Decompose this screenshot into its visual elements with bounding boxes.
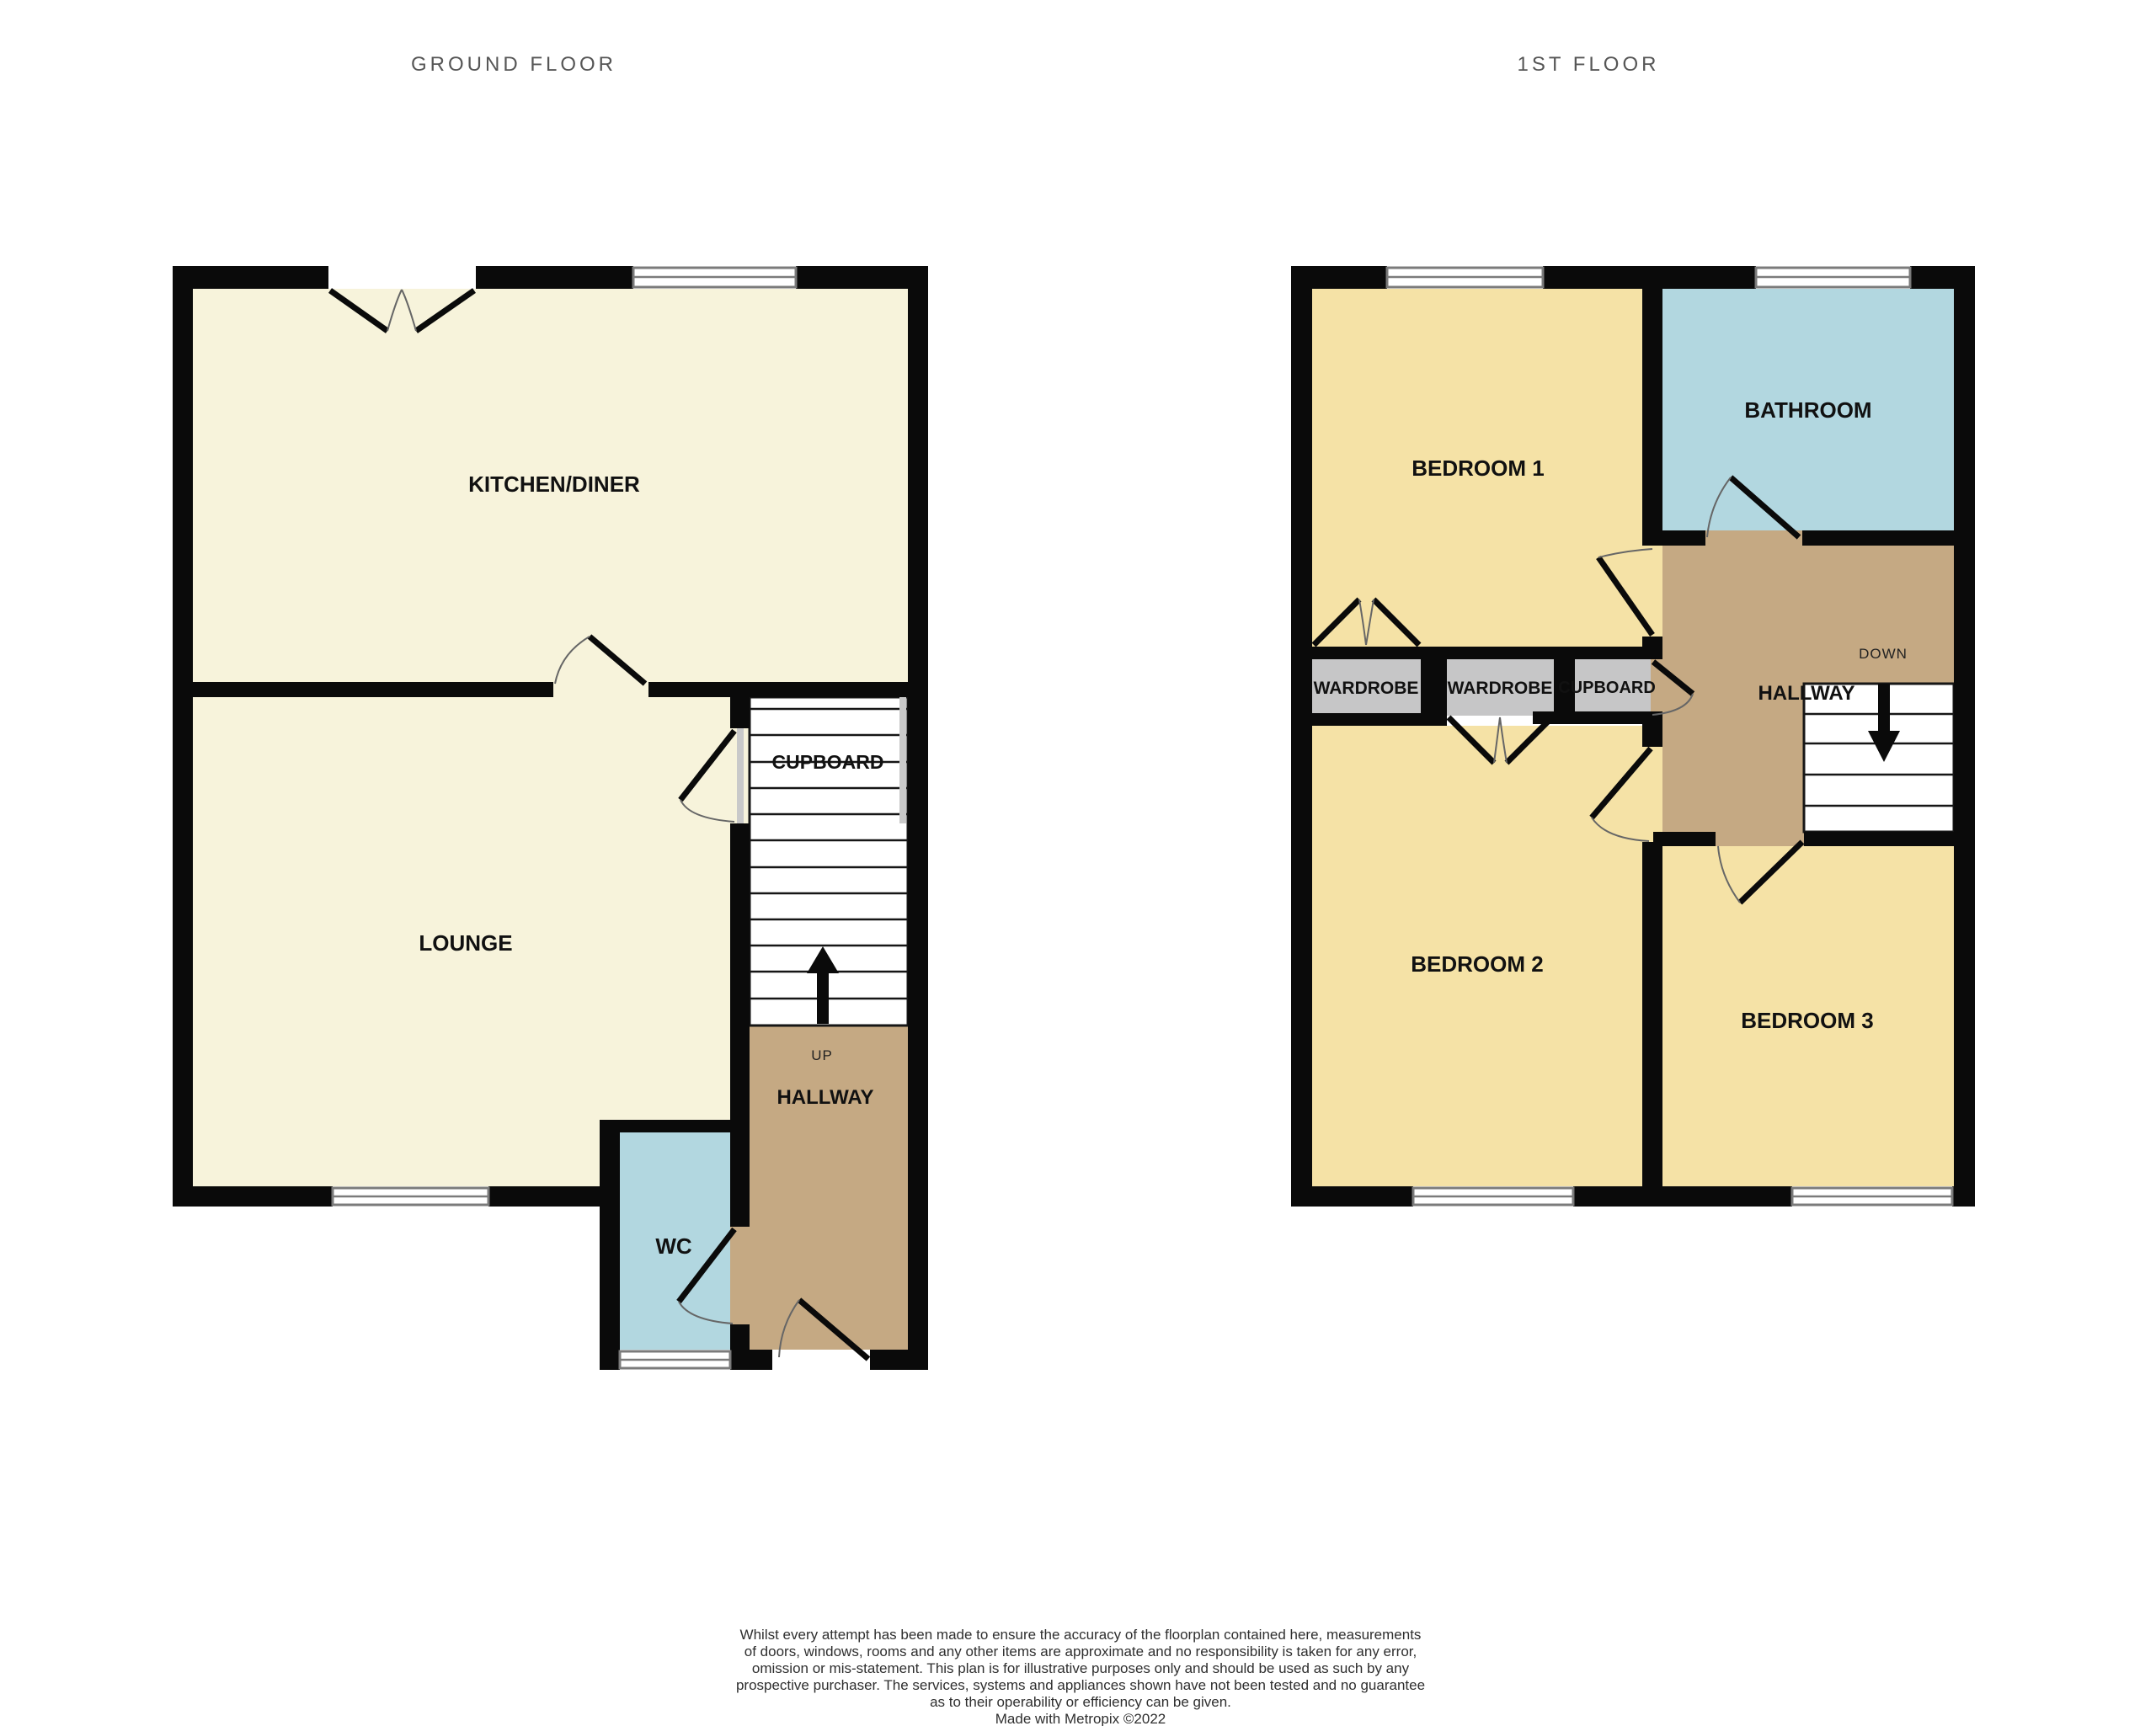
first-stairs (1804, 684, 1954, 832)
kitchen-door-gap (553, 682, 648, 697)
bedroom1-label: BEDROOM 1 (1412, 455, 1544, 481)
first-cupboard-label: CUPBOARD (1558, 679, 1656, 697)
bedroom2-window (1413, 1188, 1573, 1205)
first-floor-plan: 1ST FLOOR BEDROOM 1 BATHROOM WARDROBE WA… (1291, 53, 1975, 1207)
kitchen-window (633, 268, 796, 287)
ground-cupboard-label: CUPBOARD (772, 751, 884, 773)
first-hallway-label: HALLWAY (1758, 682, 1854, 705)
wardrobe2-label: WARDROBE (1448, 679, 1553, 698)
bedroom2-label: BEDROOM 2 (1411, 951, 1543, 977)
ground-floor-title: GROUND FLOOR (411, 53, 616, 76)
bedroom3-label: BEDROOM 3 (1741, 1008, 1873, 1033)
bathroom-door-gap (1705, 530, 1802, 546)
cupboard-door-jamb (737, 728, 744, 823)
ground-hallway-label: HALLWAY (776, 1086, 873, 1109)
first-hallway-floor-upper (1662, 546, 1954, 684)
ground-hallway-floor (750, 1025, 908, 1350)
bedroom3-door-gap (1716, 832, 1804, 846)
ground-stairs (737, 697, 908, 1025)
wc-window (620, 1351, 730, 1368)
ground-floor-plan: GROUND FLOOR KITCHEN/DINER LOUNGE CUPBOA… (173, 53, 928, 1370)
disclaimer-line: as to their operability or efficiency ca… (930, 1694, 1231, 1710)
wc-label: WC (655, 1233, 692, 1259)
wardrobe1-label: WARDROBE (1314, 679, 1419, 698)
bathroom-window (1756, 268, 1910, 287)
disclaimer-line: of doors, windows, rooms and any other i… (744, 1643, 1417, 1659)
bathroom-label: BATHROOM (1744, 397, 1871, 423)
lounge-window (333, 1188, 488, 1205)
kitchen-diner-label: KITCHEN/DINER (468, 471, 640, 497)
first-floor-title: 1ST FLOOR (1518, 53, 1660, 76)
disclaimer-line: Whilst every attempt has been made to en… (740, 1627, 1422, 1643)
disclaimer-line: prospective purchaser. The services, sys… (736, 1677, 1425, 1693)
bedroom3-window (1792, 1188, 1952, 1205)
made-with-credit: Made with Metropix ©2022 (995, 1711, 1166, 1726)
footer-disclaimer: Whilst every attempt has been made to en… (736, 1627, 1425, 1726)
stairs-up-label: UP (811, 1047, 833, 1063)
wc-door-gap (730, 1227, 750, 1324)
lounge-label: LOUNGE (419, 930, 512, 956)
bedroom1-window (1387, 268, 1543, 287)
stairs-down-label: DOWN (1859, 646, 1908, 662)
bedroom2-door-gap (1642, 747, 1662, 842)
floorplan-canvas: GROUND FLOOR KITCHEN/DINER LOUNGE CUPBOA… (0, 0, 2156, 1726)
cupboard-right-jamb (899, 697, 906, 823)
disclaimer-line: omission or mis-statement. This plan is … (752, 1660, 1410, 1676)
